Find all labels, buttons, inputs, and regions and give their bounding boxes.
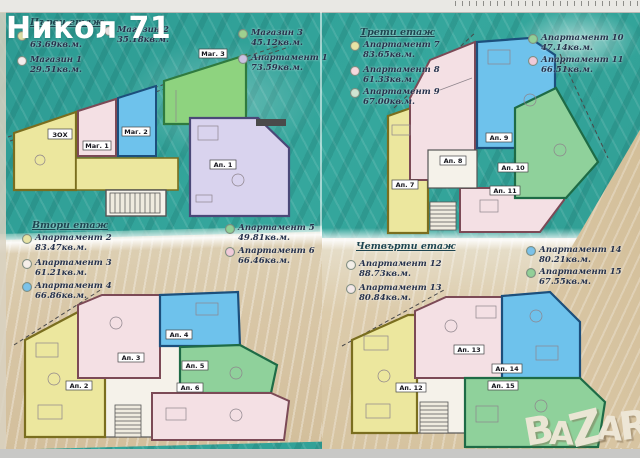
- room-label-chip: Ап. 2: [66, 381, 92, 390]
- legend-label: Апартамент 5: [238, 223, 315, 233]
- room-label-chip: Ап. 13: [454, 345, 484, 354]
- legend-entry: Апартамент 283.47кв.м.: [22, 233, 112, 253]
- legend-label: Апартамент 2: [35, 233, 112, 243]
- bazar-watermark: BAZAR: [523, 395, 640, 455]
- legend-bullet: [17, 56, 27, 66]
- legend-label: Апартамент 11: [541, 55, 624, 65]
- room-zox: [14, 112, 76, 190]
- room-label: Ап. 4: [170, 331, 189, 339]
- room-mag2: [118, 86, 156, 156]
- legend-bullet: [22, 282, 32, 292]
- room-label-chip: Ап. 5: [182, 361, 208, 370]
- legend-bullet: [225, 247, 235, 257]
- legend-label: Апартамент 9: [363, 87, 440, 97]
- legend-bullet: [350, 66, 360, 76]
- legend-size: 47.14кв.м.: [541, 43, 624, 53]
- room-label-chip: Маг. 3: [199, 49, 227, 58]
- legend-size: 29.51кв.м.: [30, 65, 82, 75]
- room-ap12: [352, 315, 417, 433]
- stairs-icon: [115, 405, 141, 437]
- room-label: Ап. 13: [457, 346, 480, 354]
- legend-bullet: [225, 224, 235, 234]
- room-label-chip: Ап. 14: [492, 364, 522, 373]
- room-label: Ап. 3: [122, 354, 141, 362]
- room-ap3: [78, 295, 160, 378]
- room-zox-annex: [76, 158, 178, 190]
- legend-bullet: [528, 56, 538, 66]
- legend-size: 80.84кв.м.: [359, 293, 442, 303]
- stairs-icon: [430, 202, 456, 230]
- legend-label: Магазин 3: [251, 28, 303, 38]
- legend-entry: Апартамент 1567.55кв.м.: [526, 267, 622, 287]
- legend-entry: Магазин 129.51кв.м.: [17, 55, 82, 75]
- legend-size: 66.51кв.м.: [541, 65, 624, 75]
- room-ap6: [152, 393, 289, 440]
- legend-bullet: [22, 259, 32, 269]
- legend-size: 66.46кв.м.: [238, 256, 315, 266]
- legend-size: 67.00кв.м.: [363, 97, 440, 107]
- room-label-chip: Ап. 11: [490, 186, 520, 195]
- legend-entry: Апартамент 861.33кв.м.: [350, 65, 440, 85]
- room-label: Ап. 2: [70, 382, 89, 390]
- legend-size: 83.47кв.м.: [35, 243, 112, 253]
- room-label: Ап. 10: [501, 164, 525, 172]
- legend-entry: Магазин 345.12кв.м.: [238, 28, 303, 48]
- room-label: Ап. 14: [495, 365, 519, 373]
- room-label: Ап. 12: [399, 384, 422, 392]
- room-label-chip: Ап. 8: [440, 156, 466, 165]
- legend-entry: Апартамент 1288.73кв.м.: [346, 259, 442, 279]
- room-label-chip: Ап. 3: [118, 353, 144, 362]
- room-label-chip: Ап. 15: [488, 381, 518, 390]
- room-label-chip: Ап. 7: [392, 180, 418, 189]
- legend-size: 66.86кв.м.: [35, 291, 112, 301]
- room-label-chip: Ап. 10: [498, 163, 528, 172]
- room-label: Маг. 3: [201, 50, 225, 58]
- legend-bullet: [350, 88, 360, 98]
- legend-label: Апартамент 7: [363, 40, 440, 50]
- room-label: Ап. 1: [214, 161, 233, 169]
- legend-entry: Апартамент 173.59кв.м.: [238, 53, 328, 73]
- legend-size: 49.81кв.м.: [238, 233, 315, 243]
- brochure-photo: ЗОХ Маг. 1 Маг. 2 Маг. 3 Ап. 1: [0, 0, 640, 458]
- legend-bullet: [528, 34, 538, 44]
- stairs-icon: [110, 193, 160, 213]
- room-label: Ап. 8: [444, 157, 463, 165]
- legend-label: Апартамент 13: [359, 283, 442, 293]
- legend-size: 88.73кв.м.: [359, 269, 442, 279]
- legend-label: Апартамент 14: [539, 245, 622, 255]
- legend-title-fourth-floor: Четвърти етаж: [356, 241, 455, 252]
- room-label: ЗОХ: [52, 131, 67, 139]
- legend-bullet: [238, 29, 248, 39]
- legend-entry: Апартамент 666.46кв.м.: [225, 246, 315, 266]
- legend-entry: Апартамент 466.86кв.м.: [22, 281, 112, 301]
- room-label-chip: Маг. 1: [83, 141, 111, 150]
- legend-label: Апартамент 4: [35, 281, 112, 291]
- room-label: Ап. 6: [181, 384, 200, 392]
- legend-size: 61.33кв.м.: [363, 75, 440, 85]
- page-seam: [320, 12, 322, 236]
- room-ap13: [415, 297, 503, 378]
- legend-title-third-floor: Трети етаж: [360, 27, 435, 38]
- legend-entry: Апартамент 1380.84кв.м.: [346, 283, 442, 303]
- legend-label: Апартамент 1: [251, 53, 328, 63]
- legend-size: 67.55кв.м.: [539, 277, 622, 287]
- room-label: Маг. 2: [124, 128, 148, 136]
- legend-title-second-floor: Втори етаж: [32, 220, 108, 231]
- legend-size: 45.12кв.м.: [251, 38, 303, 48]
- room-label: Маг. 1: [85, 142, 109, 150]
- room-label-chip: Ап. 12: [396, 383, 426, 392]
- legend-bullet: [526, 268, 536, 278]
- legend-bullet: [350, 41, 360, 51]
- room-label: Ап. 7: [396, 181, 415, 189]
- room-label-chip: Ап. 9: [486, 133, 512, 142]
- legend-entry: Апартамент 783.65кв.м.: [350, 40, 440, 60]
- legend-entry: Апартамент 1166.51кв.м.: [528, 55, 624, 75]
- legend-entry: Апартамент 549.81кв.м.: [225, 223, 315, 243]
- room-label-chip: Маг. 2: [122, 127, 150, 136]
- legend-size: 73.59кв.м.: [251, 63, 328, 73]
- room-label: Ап. 9: [490, 134, 509, 142]
- legend-label: Апартамент 6: [238, 246, 315, 256]
- agency-watermark: Никол 71: [6, 11, 171, 46]
- legend-bullet: [238, 54, 248, 64]
- legend-label: Апартамент 10: [541, 33, 624, 43]
- legend-bullet: [346, 260, 356, 270]
- room-label: Ап. 11: [493, 187, 517, 195]
- legend-label: Апартамент 12: [359, 259, 442, 269]
- room-label-chip: ЗОХ: [48, 129, 72, 139]
- legend-label: Апартамент 8: [363, 65, 440, 75]
- floor-plan-second-floor: Ап. 2 Ап. 3 Ап. 4 Ап. 5 Ап. 6: [6, 283, 316, 448]
- legend-bullet: [22, 234, 32, 244]
- room-label-chip: Ап. 1: [210, 160, 236, 169]
- legend-label: Апартамент 3: [35, 258, 112, 268]
- room-label: Ап. 5: [186, 362, 205, 370]
- legend-bullet: [526, 246, 536, 256]
- legend-label: Апартамент 15: [539, 267, 622, 277]
- legend-bullet: [346, 284, 356, 294]
- room-ap10: [515, 88, 598, 198]
- legend-size: 80.21кв.м.: [539, 255, 622, 265]
- legend-entry: Апартамент 361.21кв.м.: [22, 258, 112, 278]
- legend-entry: Апартамент 1047.14кв.м.: [528, 33, 624, 53]
- room-label-chip: Ап. 6: [177, 383, 203, 392]
- room-ap1: [190, 118, 289, 216]
- room-label-chip: Ап. 4: [166, 330, 192, 339]
- legend-label: Магазин 1: [30, 55, 82, 65]
- legend-size: 83.65кв.м.: [363, 50, 440, 60]
- room-label: Ап. 15: [491, 382, 515, 390]
- legend-size: 61.21кв.м.: [35, 268, 112, 278]
- stairs-icon: [420, 402, 448, 433]
- legend-entry: Апартамент 1480.21кв.м.: [526, 245, 622, 265]
- legend-entry: Апартамент 967.00кв.м.: [350, 87, 440, 107]
- entrance-label-chip: [256, 119, 286, 126]
